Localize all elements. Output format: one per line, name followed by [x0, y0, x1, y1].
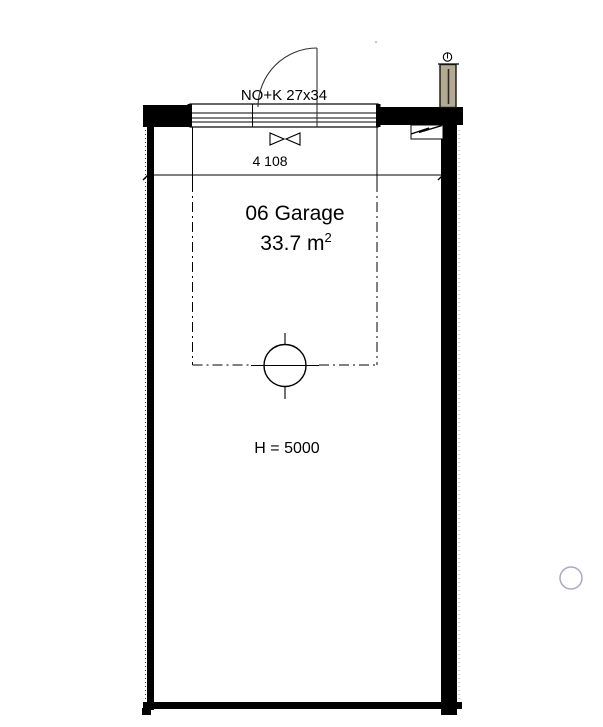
door-type-label: NO+K 27x34 — [241, 88, 327, 103]
downpipe-icon — [438, 53, 459, 108]
left-wall — [147, 127, 154, 710]
room-area-label: 33.7 m2 — [260, 231, 331, 254]
room-title: 06 Garage — [245, 203, 344, 224]
top-left-wall — [143, 105, 190, 127]
bowtie-damper-icon — [270, 133, 300, 145]
room-area-exponent: 2 — [324, 230, 331, 245]
garage-door-panel — [188, 104, 381, 127]
room-area-value: 33.7 m — [260, 232, 324, 255]
dimension-label: 4 108 — [252, 154, 287, 168]
bottom-wall — [143, 702, 462, 709]
faint-dot — [375, 41, 377, 43]
floor-plan-linework — [0, 0, 603, 727]
reference-circle — [560, 567, 582, 589]
ceiling-height-label: H = 5000 — [254, 441, 319, 457]
floor-drain-symbol — [251, 333, 319, 399]
door-jamb-right — [376, 104, 381, 127]
floor-plan-canvas: NO+K 27x34 4 108 06 Garage 33.7 m2 H = 5… — [0, 0, 603, 727]
door-jamb-left — [188, 104, 193, 127]
right-wall — [441, 107, 457, 715]
dimension-line — [143, 125, 448, 182]
break-line-icon — [411, 125, 443, 139]
bottom-left-wall-nub — [142, 708, 151, 715]
